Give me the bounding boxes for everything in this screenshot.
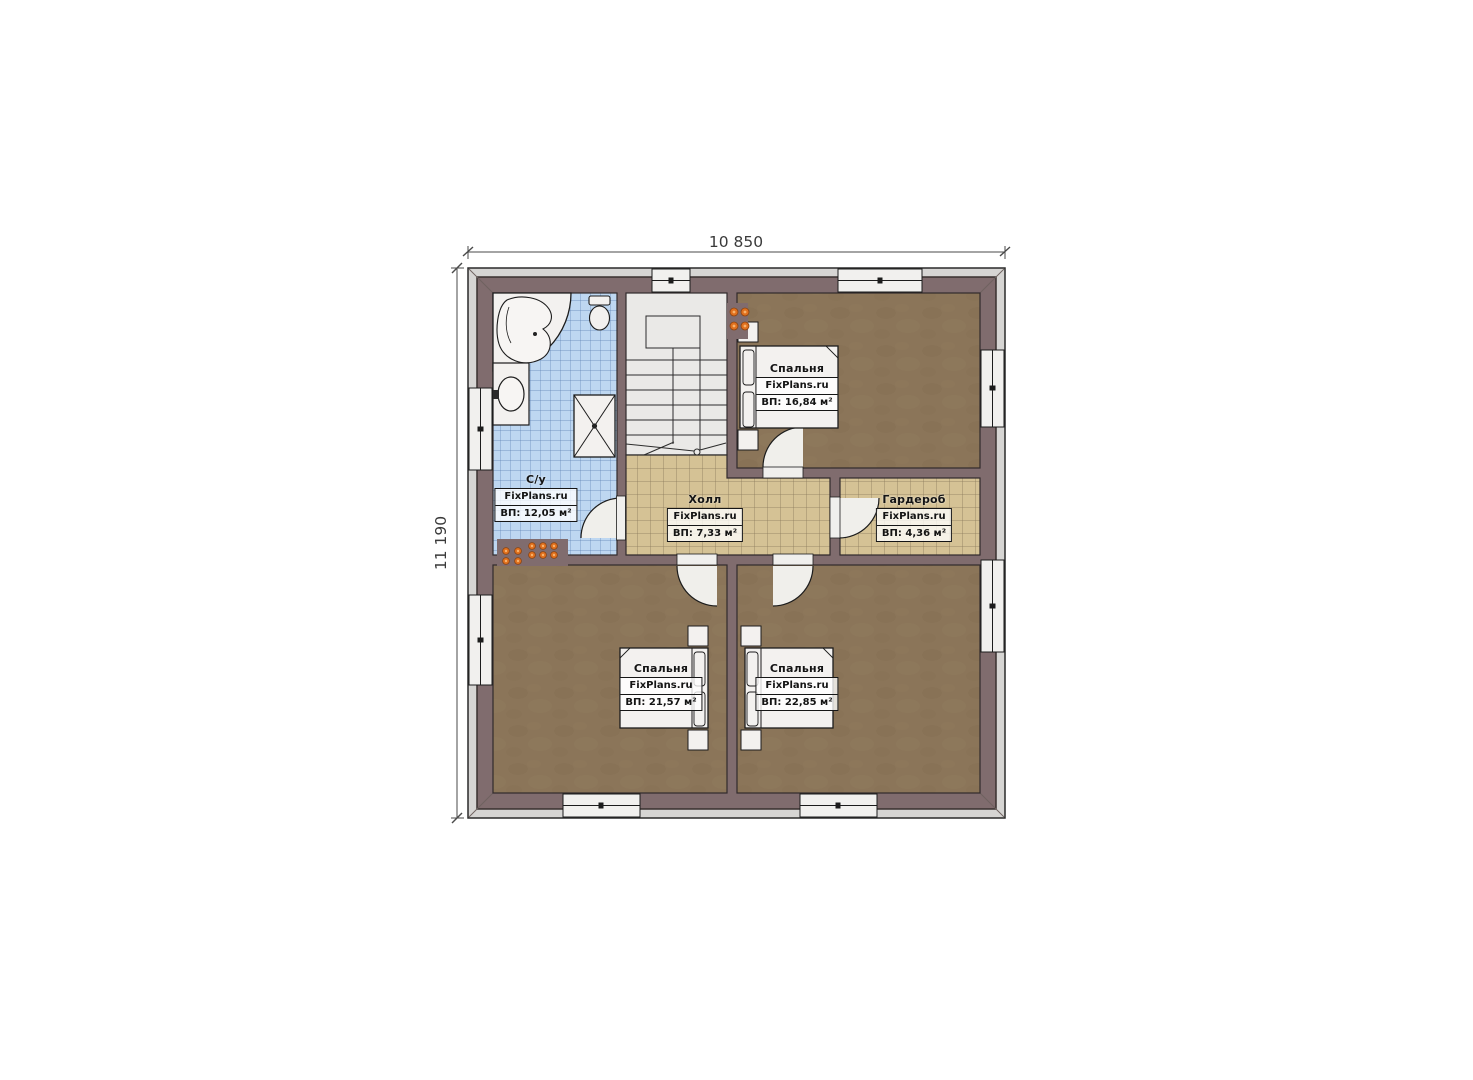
room-label-bedroom-top: Спальня FixPlans.ru ВП: 16,84 м²	[755, 362, 838, 411]
bedroom-left-door-sill	[677, 554, 717, 565]
sink-faucet	[493, 390, 499, 399]
room-name: Спальня	[755, 662, 838, 675]
room-name: С/у	[494, 473, 577, 486]
sink-icon	[498, 377, 524, 411]
room-name: Гардероб	[876, 493, 952, 506]
bedroom-top-door-sill	[763, 467, 803, 478]
window-bottom-2	[800, 794, 877, 817]
bedroom-right-door-sill	[773, 554, 813, 565]
window-top-2	[838, 269, 922, 292]
room-area: ВП: 12,05 м²	[495, 505, 576, 522]
shower-icon	[574, 395, 615, 457]
room-area: ВП: 16,84 м²	[756, 394, 837, 411]
stair-arrow-start	[694, 449, 700, 455]
room-area: ВП: 22,85 м²	[756, 694, 837, 711]
floor-plan-page: 10 850 11 190 С/у FixPlans.ru ВП: 12,05 …	[0, 0, 1473, 1080]
staircase-area	[626, 293, 727, 455]
room-area: ВП: 4,36 м²	[877, 525, 951, 542]
watermark-text: FixPlans.ru	[620, 678, 701, 694]
room-label-bedroom-right: Спальня FixPlans.ru ВП: 22,85 м²	[755, 662, 838, 711]
window-right-2	[981, 560, 1004, 652]
room-label-wardrobe: Гардероб FixPlans.ru ВП: 4,36 м²	[876, 493, 952, 542]
bathtub-drain	[533, 332, 537, 336]
room-area: ВП: 21,57 м²	[620, 694, 701, 711]
window-right-1	[981, 350, 1004, 427]
toilet-bowl-icon	[590, 306, 610, 330]
window-bottom-1	[563, 794, 640, 817]
room-label-bedroom-left: Спальня FixPlans.ru ВП: 21,57 м²	[619, 662, 702, 711]
room-area: ВП: 7,33 м²	[668, 525, 742, 542]
room-name: Спальня	[755, 362, 838, 375]
wardrobe-door-sill	[830, 497, 840, 538]
window-top-1	[652, 269, 690, 292]
dimension-height-label: 11 190	[432, 516, 450, 570]
watermark-text: FixPlans.ru	[668, 509, 742, 525]
watermark-text: FixPlans.ru	[495, 489, 576, 505]
watermark-text: FixPlans.ru	[756, 378, 837, 394]
bathtub-icon	[497, 297, 551, 363]
window-left-2	[469, 595, 492, 685]
bathroom-door-sill	[617, 496, 626, 540]
window-left-1	[469, 388, 492, 470]
dimension-width-label: 10 850	[709, 233, 763, 251]
watermark-text: FixPlans.ru	[877, 509, 951, 525]
room-name: Спальня	[619, 662, 702, 675]
room-label-hall: Холл FixPlans.ru ВП: 7,33 м²	[667, 493, 743, 542]
toilet-tank-icon	[589, 296, 610, 305]
room-name: Холл	[667, 493, 743, 506]
watermark-text: FixPlans.ru	[756, 678, 837, 694]
room-label-bathroom: С/у FixPlans.ru ВП: 12,05 м²	[494, 473, 577, 522]
